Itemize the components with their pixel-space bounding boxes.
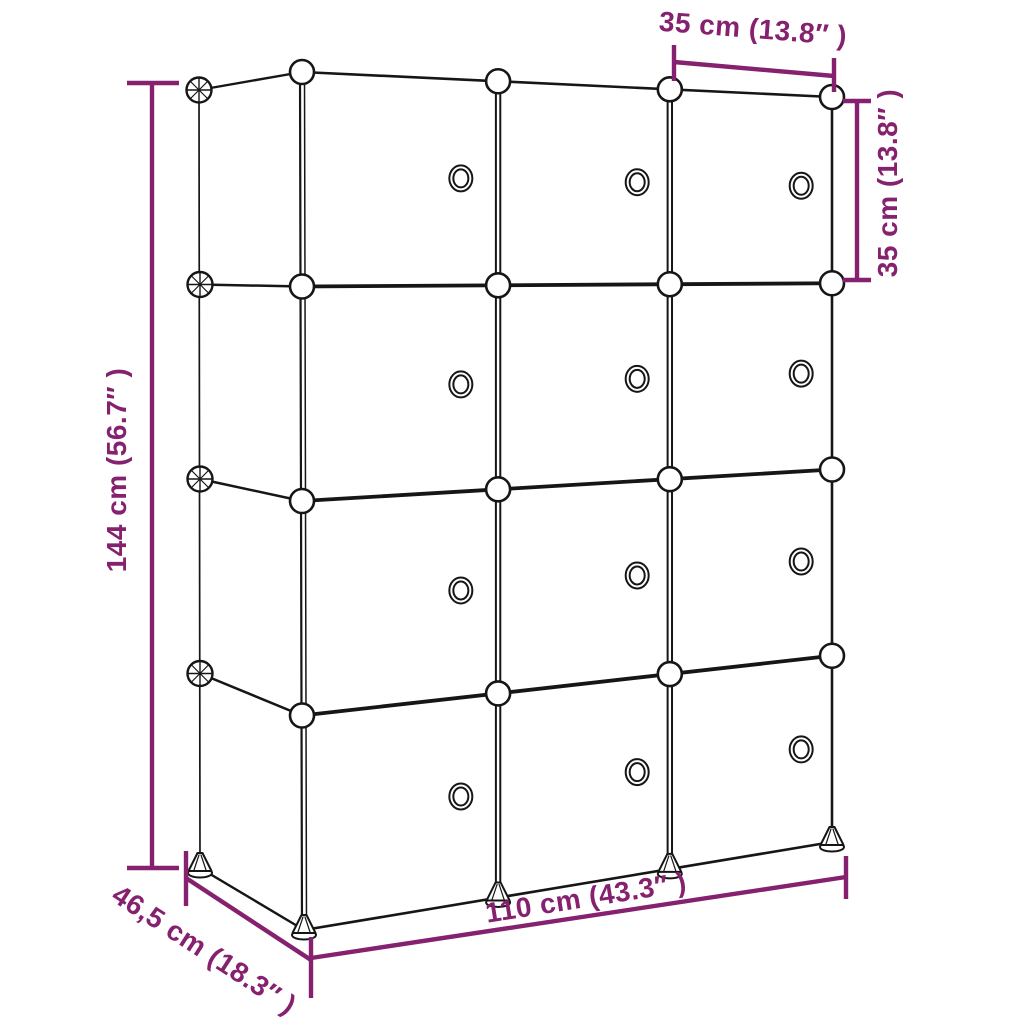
dim-top-line (674, 62, 834, 76)
foot-icon (292, 915, 316, 940)
door-knob-icon (790, 173, 813, 199)
side-panel (199, 72, 304, 930)
door-knob-icon (790, 549, 813, 575)
ball-connector-icon (820, 458, 844, 482)
ball-connector-icon (820, 271, 844, 295)
ball-connector-icon (658, 467, 682, 491)
ball-connector-icon (188, 467, 213, 492)
connector-balls (290, 60, 844, 728)
door-knob-icon (449, 371, 472, 397)
door-knob-icon (449, 577, 472, 603)
door-knob-icon (790, 736, 813, 762)
door-knob-icon (626, 562, 649, 588)
line (302, 72, 832, 97)
door-knob-icon (626, 169, 649, 195)
front-face (300, 72, 832, 930)
ball-connector-icon (486, 273, 510, 297)
line (200, 674, 302, 716)
diagram-canvas: 35 cm (13.8″ ) 35 cm (13.8″ ) 144 cm (56… (0, 0, 1024, 1024)
ball-connector-icon (187, 78, 212, 103)
door-knob-icon (790, 361, 813, 387)
ball-connector-icon (658, 272, 682, 296)
ball-connector-icon (658, 77, 682, 101)
line (302, 470, 832, 502)
ball-connector-icon (658, 662, 682, 686)
ball-connector-icon (290, 60, 314, 84)
ball-connector-icon (188, 272, 213, 297)
door-knob-icon (626, 366, 649, 392)
ball-connector-icon (290, 275, 314, 299)
dimension-label-cube-height: 35 cm (13.8″ ) (872, 89, 904, 278)
line (199, 72, 302, 90)
ball-connector-icon (820, 644, 844, 668)
ball-connector-icon (486, 69, 510, 93)
foot-icon (188, 853, 212, 878)
ball-connector-icon (188, 661, 213, 686)
door-knob-icon (449, 165, 472, 191)
foot-icon (820, 827, 844, 852)
line (200, 479, 302, 501)
ball-connector-icon (290, 704, 314, 728)
dimension-label-total-height: 144 cm (56.7″ ) (101, 368, 133, 573)
product-line-drawing (0, 0, 1024, 1024)
line (302, 283, 832, 286)
ball-connector-icon (290, 489, 314, 513)
line (302, 656, 832, 716)
ball-connector-icon (486, 477, 510, 501)
line (200, 285, 302, 287)
door-knob-icon (626, 759, 649, 785)
door-knob-icon (449, 783, 472, 809)
ball-connector-icon (486, 681, 510, 705)
